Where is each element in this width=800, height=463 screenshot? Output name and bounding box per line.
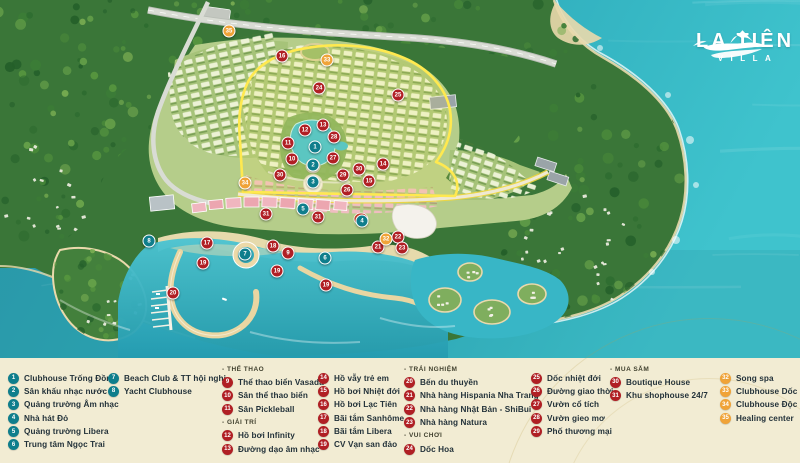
legend-item-label: Clubhouse Độc lập (736, 400, 800, 409)
legend-item-label: Hồ vẫy trẻ em (334, 374, 389, 383)
legend-item-number: 24 (404, 444, 415, 455)
legend-item-label: Dốc nhiệt đới (547, 374, 601, 383)
legend-column-1: 1Clubhouse Trống Đồng2Sân khấu nhạc nước… (8, 372, 119, 452)
map-marker-8: 8 (143, 235, 156, 248)
legend-item-17: 17Bãi tắm Sanhôme (318, 412, 404, 424)
legend-item-number: 18 (318, 426, 329, 437)
legend-section-header: - VUI CHƠI (404, 430, 539, 442)
legend-item-27: 27Vườn cổ tích (531, 399, 613, 411)
legend-item-number: 3 (8, 399, 19, 410)
legend-item-label: Sân Pickleball (238, 405, 294, 414)
map-marker-13: 13 (317, 119, 330, 132)
map-marker-34: 34 (239, 177, 252, 190)
legend-item-number: 16 (318, 399, 329, 410)
map-marker-17: 17 (201, 237, 214, 250)
map-marker-25: 25 (392, 89, 405, 102)
legend-column-5: - TRẢI NGHIỆM20Bến du thuyền21Nhà hàng H… (404, 363, 539, 457)
map-marker-26: 26 (341, 184, 354, 197)
legend-item-number: 17 (318, 413, 329, 424)
legend-column-6: 25Dốc nhiệt đới26Đường giao thời27Vườn c… (531, 372, 613, 439)
map-marker-31: 31 (312, 211, 325, 224)
legend-item-label: Nhà hàng Nhật Bản - ShiBui (420, 405, 531, 414)
legend-column-8: 32Song spa33Clubhouse Dốc hoa34Clubhouse… (720, 372, 800, 426)
legend-item-21: 21Nhà hàng Hispania Nha Trang (404, 390, 539, 402)
legend-section-label: - GIẢI TRÍ (222, 419, 257, 426)
legend-item-label: Healing center (736, 414, 794, 423)
legend-item-number: 4 (8, 413, 19, 424)
resort-masterplan-screenshot: 1234567891011121314151617181919192021222… (0, 0, 800, 463)
legend-item-number: 19 (318, 439, 329, 450)
legend-item-19: 19CV Vạn san đảo (318, 439, 404, 451)
legend-item-label: Dốc Hoa (420, 445, 454, 454)
legend-item-label: Sân thể thao biển (238, 391, 308, 400)
wave-logo-icon (690, 28, 768, 58)
legend-item-label: Đường giao thời (547, 387, 613, 396)
legend-item-number: 22 (404, 404, 415, 415)
map-marker-5: 5 (297, 203, 310, 216)
map-marker-28: 28 (328, 131, 341, 144)
legend-item-number: 21 (404, 390, 415, 401)
legend-item-number: 11 (222, 404, 233, 415)
legend-item-number: 5 (8, 426, 19, 437)
legend-item-number: 1 (8, 373, 19, 384)
legend-item-1: 1Clubhouse Trống Đồng (8, 372, 119, 384)
legend-item-7: 7Beach Club & TT hội nghị (108, 372, 226, 384)
legend-section-header: - THỂ THAO (222, 363, 324, 375)
legend-item-label: Thể thao biển Vasada (238, 378, 324, 387)
legend-item-26: 26Đường giao thời (531, 385, 613, 397)
legend-item-label: Nhà hát Đỏ (24, 414, 68, 423)
legend-item-number: 20 (404, 377, 415, 388)
legend-column-2: 7Beach Club & TT hội nghị8Yacht Clubhous… (108, 372, 226, 399)
map-marker-24: 24 (313, 82, 326, 95)
legend-item-label: Trung tâm Ngọc Trai (24, 440, 105, 449)
legend-item-number: 34 (720, 399, 731, 410)
legend-item-number: 10 (222, 390, 233, 401)
map-marker-19: 19 (271, 265, 284, 278)
legend-item-label: Phố thương mại (547, 427, 612, 436)
legend-item-11: 11Sân Pickleball (222, 403, 324, 415)
legend-item-18: 18Bãi tắm Libera (318, 426, 404, 438)
map-marker-16: 16 (276, 50, 289, 63)
map-marker-1: 1 (309, 141, 322, 154)
map-marker-30: 30 (274, 169, 287, 182)
legend-item-number: 28 (531, 413, 542, 424)
legend-item-23: 23Nhà hàng Natura (404, 417, 539, 429)
map-marker-14: 14 (377, 158, 390, 171)
map-marker-15: 15 (363, 175, 376, 188)
legend-item-number: 33 (720, 386, 731, 397)
legend-item-35: 35Healing center (720, 412, 800, 424)
map-illustration (0, 0, 800, 358)
masterplan-map: 1234567891011121314151617181919192021222… (0, 0, 800, 358)
legend-item-8: 8Yacht Clubhouse (108, 385, 226, 397)
map-marker-2: 2 (307, 159, 320, 172)
map-marker-3: 3 (307, 176, 320, 189)
map-marker-12: 12 (299, 124, 312, 137)
legend-item-label: Quảng trường Libera (24, 427, 109, 436)
map-marker-32: 32 (380, 233, 393, 246)
legend-item-label: Beach Club & TT hội nghị (124, 374, 226, 383)
map-marker-6: 6 (319, 252, 332, 265)
legend-item-20: 20Bến du thuyền (404, 376, 539, 388)
legend-item-number: 30 (610, 377, 621, 388)
legend-item-label: Clubhouse Trống Đồng (24, 374, 117, 383)
legend-item-number: 27 (531, 399, 542, 410)
legend-section-header: - TRẢI NGHIỆM (404, 363, 539, 375)
map-marker-27: 27 (327, 152, 340, 165)
map-marker-23: 23 (396, 242, 409, 255)
legend-item-label: Vườn gieo mơ (547, 414, 605, 423)
legend-item-5: 5Quảng trường Libera (8, 426, 119, 438)
map-marker-19: 19 (197, 257, 210, 270)
legend-item-24: 24Dốc Hoa (404, 443, 539, 455)
map-marker-4: 4 (356, 215, 369, 228)
legend-item-label: CV Vạn san đảo (334, 440, 397, 449)
map-marker-18: 18 (267, 240, 280, 253)
legend-item-label: Clubhouse Dốc hoa (736, 387, 800, 396)
legend-item-label: Bãi tắm Sanhôme (334, 414, 404, 423)
legend-item-34: 34Clubhouse Độc lập (720, 399, 800, 411)
legend-column-7: - MUA SẮM30Boutique House31Khu shophouse… (610, 363, 708, 403)
legend-item-3: 3Quảng trường Âm nhạc (8, 399, 119, 411)
map-marker-29: 29 (337, 169, 350, 182)
legend-item-number: 29 (531, 426, 542, 437)
legend-item-label: Khu shophouse 24/7 (626, 391, 708, 400)
legend-section-header: - GIẢI TRÍ (222, 417, 324, 429)
legend-section-header: - MUA SẮM (610, 363, 708, 375)
legend-item-label: Yacht Clubhouse (124, 387, 192, 396)
legend-item-14: 14Hồ vẫy trẻ em (318, 372, 404, 384)
legend-item-30: 30Boutique House (610, 376, 708, 388)
legend-item-number: 15 (318, 386, 329, 397)
legend-item-label: Nhà hàng Hispania Nha Trang (420, 391, 539, 400)
legend-item-33: 33Clubhouse Dốc hoa (720, 385, 800, 397)
legend-item-6: 6Trung tâm Ngọc Trai (8, 439, 119, 451)
legend-item-label: Hồ bơi Lạc Tiên (334, 400, 397, 409)
legend-item-28: 28Vườn gieo mơ (531, 412, 613, 424)
legend-item-10: 10Sân thể thao biển (222, 390, 324, 402)
legend-item-number: 8 (108, 386, 119, 397)
legend-item-9: 9Thể thao biển Vasada (222, 376, 324, 388)
map-marker-33: 33 (321, 54, 334, 67)
legend-item-label: Sân khấu nhạc nước (24, 387, 107, 396)
legend-section-label: - TRẢI NGHIỆM (404, 366, 457, 373)
map-legend: 1Clubhouse Trống Đồng2Sân khấu nhạc nước… (0, 358, 800, 463)
legend-item-number: 26 (531, 386, 542, 397)
legend-item-15: 15Hồ bơi Nhiệt đới (318, 385, 404, 397)
map-marker-10: 10 (286, 153, 299, 166)
legend-column-3: - THỂ THAO9Thể thao biển Vasada10Sân thể… (222, 363, 324, 457)
legend-item-number: 14 (318, 373, 329, 384)
legend-section-label: - VUI CHƠI (404, 432, 442, 439)
legend-item-22: 22Nhà hàng Nhật Bản - ShiBui (404, 403, 539, 415)
legend-item-number: 32 (720, 373, 731, 384)
map-marker-30: 30 (353, 163, 366, 176)
legend-item-label: Hồ bơi Infinity (238, 431, 295, 440)
legend-item-label: Nhà hàng Natura (420, 418, 487, 427)
legend-item-31: 31Khu shophouse 24/7 (610, 390, 708, 402)
legend-item-16: 16Hồ bơi Lạc Tiên (318, 399, 404, 411)
legend-item-number: 25 (531, 373, 542, 384)
legend-item-label: Đường dạo âm nhạc (238, 445, 320, 454)
map-marker-31: 31 (260, 208, 273, 221)
legend-item-label: Hồ bơi Nhiệt đới (334, 387, 400, 396)
map-marker-20: 20 (167, 287, 180, 300)
map-marker-11: 11 (282, 137, 295, 150)
legend-item-number: 6 (8, 439, 19, 450)
legend-item-13: 13Đường dạo âm nhạc (222, 443, 324, 455)
legend-item-number: 2 (8, 386, 19, 397)
map-marker-9: 9 (282, 247, 295, 260)
legend-section-label: - MUA SẮM (610, 366, 649, 373)
legend-item-number: 13 (222, 444, 233, 455)
map-marker-19: 19 (320, 279, 333, 292)
map-marker-7: 7 (239, 248, 252, 261)
legend-item-25: 25Dốc nhiệt đới (531, 372, 613, 384)
legend-item-label: Bến du thuyền (420, 378, 478, 387)
legend-item-label: Bãi tắm Libera (334, 427, 392, 436)
legend-item-number: 35 (720, 413, 731, 424)
map-marker-35: 35 (223, 25, 236, 38)
legend-item-2: 2Sân khấu nhạc nước (8, 385, 119, 397)
legend-item-29: 29Phố thương mại (531, 426, 613, 438)
legend-item-number: 12 (222, 430, 233, 441)
legend-item-4: 4Nhà hát Đỏ (8, 412, 119, 424)
legend-item-number: 9 (222, 377, 233, 388)
legend-item-number: 7 (108, 373, 119, 384)
legend-item-number: 31 (610, 390, 621, 401)
legend-item-label: Boutique House (626, 378, 690, 387)
legend-item-32: 32Song spa (720, 372, 800, 384)
legend-item-label: Song spa (736, 374, 774, 383)
legend-item-label: Vườn cổ tích (547, 400, 599, 409)
legend-column-4: 14Hồ vẫy trẻ em15Hồ bơi Nhiệt đới16Hồ bơ… (318, 372, 404, 452)
legend-item-label: Quảng trường Âm nhạc (24, 400, 119, 409)
brand-logo: LA TIÊN VILLA (690, 28, 800, 63)
legend-item-number: 23 (404, 417, 415, 428)
legend-section-label: - THỂ THAO (222, 366, 264, 373)
legend-item-12: 12Hồ bơi Infinity (222, 430, 324, 442)
